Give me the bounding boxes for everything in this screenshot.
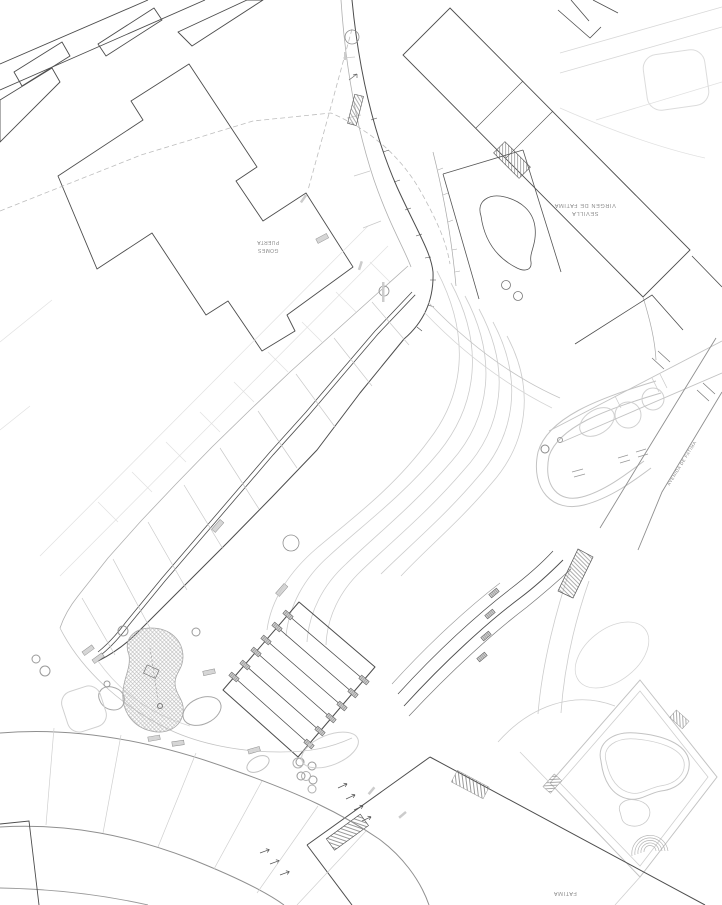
street-right-label: AVENIDA DE FATIMA (666, 440, 697, 486)
bottom-building (244, 725, 705, 905)
school-entrance-steps (494, 142, 531, 179)
school-label-line2: VIRGEN DE FATIMA (554, 202, 616, 208)
bottom-street-label: FATIMA (553, 890, 576, 896)
southwest-road (0, 728, 429, 905)
left-building-label: GOMES PUERTA (257, 239, 279, 253)
dashed-boundaries (0, 29, 450, 264)
micro-annotations (300, 52, 407, 819)
top-right-corner (558, 0, 722, 158)
top-left-buildings (0, 0, 263, 142)
left-building-label-line2: PUERTA (257, 239, 279, 245)
contour-curves (267, 271, 661, 742)
pool-steps-west (543, 774, 562, 793)
promenade-trees (283, 30, 389, 551)
right-street: AVENIDA DE FATIMA (549, 295, 722, 550)
pool-steps-north (670, 710, 689, 729)
promenade-top-steps (348, 94, 364, 125)
central-stairs (223, 602, 375, 784)
hairpin-path (536, 381, 664, 507)
school-label: SEVILLA VIRGEN DE FATIMA (554, 202, 616, 216)
promenade-joints (82, 57, 409, 655)
pool-area (520, 680, 717, 905)
stair-tabs (229, 610, 369, 749)
faint-left-lines (0, 300, 52, 430)
promenade-benches (212, 233, 329, 596)
bottom-building-stairs-east (451, 770, 489, 798)
school-building: SEVILLA VIRGEN DE FATIMA (403, 8, 722, 297)
left-building: GOMES PUERTA (58, 64, 353, 351)
school-label-line1: SEVILLA (572, 210, 599, 216)
rooftop-pool-outline (641, 48, 710, 112)
site-plan-page: GOMES PUERTA SEVILLA VIRGEN DE FATIMA (0, 0, 722, 905)
site-plan-drawing: GOMES PUERTA SEVILLA VIRGEN DE FATIMA (0, 0, 722, 905)
promenade (40, 0, 436, 661)
left-building-label-line1: GOMES (257, 247, 278, 253)
playground-surface (123, 628, 183, 732)
plaza-playground (32, 626, 352, 754)
